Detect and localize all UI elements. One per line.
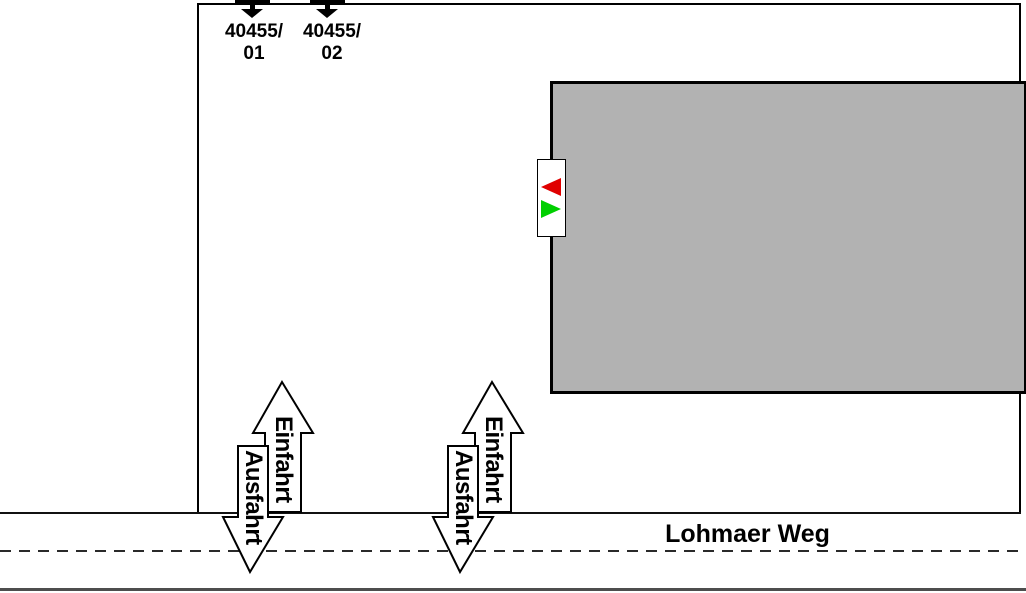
parcel-suffix: 02 bbox=[302, 43, 362, 65]
signal-green-right-arrow-icon bbox=[541, 200, 561, 218]
access-point-icon-2 bbox=[310, 0, 345, 18]
traffic-signal bbox=[537, 159, 566, 237]
parcel-label-2: 40455/ 02 bbox=[302, 21, 362, 65]
driveway-arrow-shapes bbox=[218, 379, 318, 575]
driveway-arrows-1: Einfahrt Ausfahrt bbox=[223, 382, 313, 572]
street-name-label: Lohmaer Weg bbox=[645, 520, 850, 549]
access-point-icon-1 bbox=[235, 0, 270, 18]
exit-label: Ausfahrt bbox=[450, 450, 476, 546]
parcel-number: 40455/ bbox=[302, 21, 362, 43]
building bbox=[550, 81, 1026, 394]
road-edge-bottom bbox=[0, 588, 1026, 591]
driveway-arrows-2: Einfahrt Ausfahrt bbox=[433, 382, 523, 572]
entrance-label: Einfahrt bbox=[270, 416, 296, 512]
exit-label: Ausfahrt bbox=[240, 450, 266, 546]
gate-down-arrow-icon bbox=[316, 9, 338, 18]
signal-red-left-arrow-icon bbox=[541, 178, 561, 196]
entrance-label: Einfahrt bbox=[480, 416, 506, 512]
parcel-number: 40455/ bbox=[224, 21, 284, 43]
driveway-arrow-shapes bbox=[428, 379, 528, 575]
parcel-suffix: 01 bbox=[224, 43, 284, 65]
parcel-label-1: 40455/ 01 bbox=[224, 21, 284, 65]
site-plan: 40455/ 01 40455/ 02 Lohmaer Weg Einfahrt… bbox=[0, 0, 1026, 593]
gate-down-arrow-icon bbox=[241, 9, 263, 18]
